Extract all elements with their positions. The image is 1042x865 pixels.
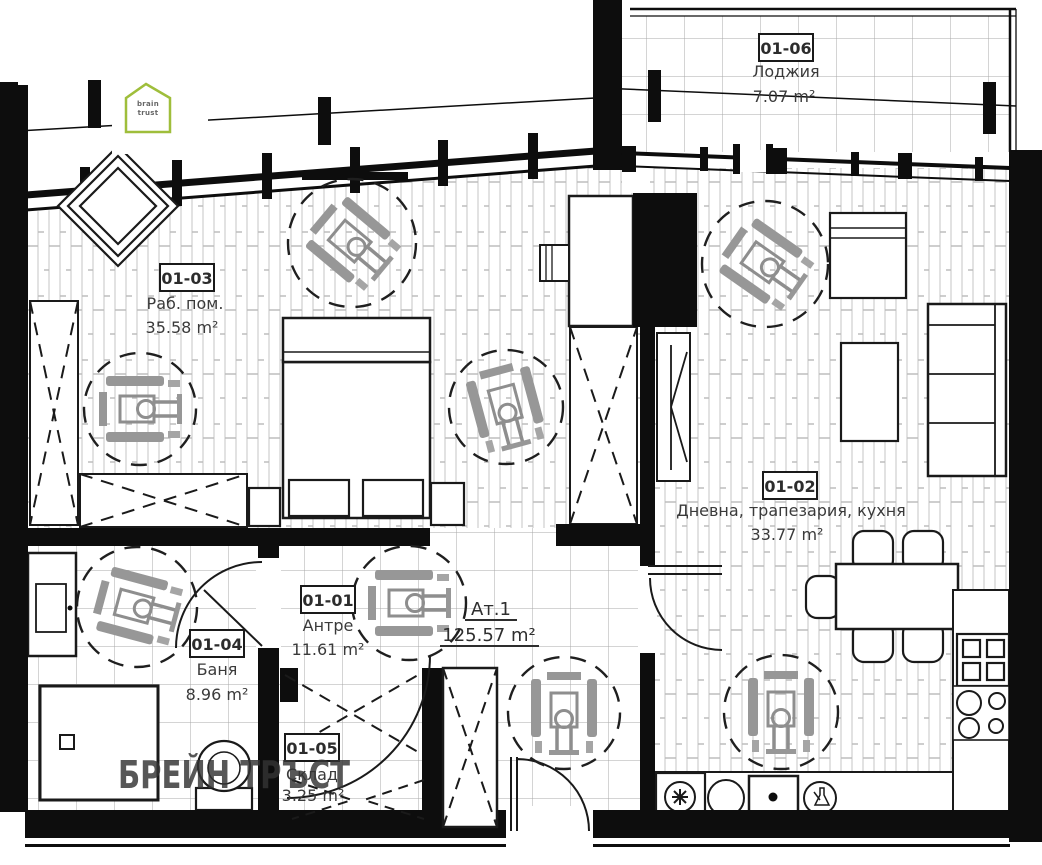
floor-passage: [430, 528, 560, 546]
dishwasher-icon: [804, 782, 836, 814]
room-name: Раб. пом.: [147, 294, 224, 313]
watermark-text: БРЕЙН ТРЪСТ: [118, 753, 350, 797]
nightstand-right: [431, 483, 464, 525]
apartment-name: Ат.1: [471, 599, 511, 620]
armchair: [830, 213, 906, 298]
coffee-table: [841, 343, 898, 441]
room-label-loggia: 01-06 Лоджия 7.07 m²: [752, 34, 819, 106]
wardrobe-center: [570, 327, 637, 524]
room-id: 01-03: [161, 269, 212, 288]
room-name: Баня: [197, 660, 238, 679]
room-area: 7.07 m²: [753, 87, 816, 106]
room-name: Антре: [303, 616, 354, 635]
room-id: 01-01: [302, 591, 353, 610]
sofa: [928, 304, 1006, 476]
bed: [283, 318, 430, 518]
room-id: 01-06: [760, 39, 811, 58]
logo-text-2: trust: [138, 109, 159, 117]
cooktop-icon: [953, 686, 1009, 740]
room-id: 01-04: [191, 635, 242, 654]
wardrobe-k: [657, 333, 690, 481]
room-area: 35.58 m²: [146, 318, 219, 337]
floor-plan-page: 01-06 Лоджия 7.07 m² 01-03 Раб. пом. 35.…: [0, 0, 1042, 865]
kitchen-tall-units: [953, 590, 1009, 822]
room-id: 01-02: [764, 477, 815, 496]
brain-trust-logo: brain trust: [112, 76, 208, 154]
room-name: Дневна, трапезария, кухня: [676, 501, 906, 520]
cabinet-low: [80, 474, 247, 527]
room-area: 33.77 m²: [751, 525, 824, 544]
room-area: 8.96 m²: [186, 685, 249, 704]
oven-icon: [957, 634, 1009, 686]
nightstand-left: [249, 488, 280, 526]
logo-text-1: brain: [137, 100, 159, 108]
room-name: Лоджия: [752, 62, 819, 81]
floor-plan-drawing: 01-06 Лоджия 7.07 m² 01-03 Раб. пом. 35.…: [0, 0, 1042, 865]
dining-table: [836, 564, 958, 629]
floor-balcony: [622, 16, 1009, 152]
vanity-sink: [20, 553, 76, 656]
installation-shaft: [443, 668, 497, 827]
apartment-area: 125.57 m²: [442, 625, 535, 646]
wardrobe-left: [30, 301, 78, 525]
room-area: 11.61 m²: [292, 640, 365, 659]
